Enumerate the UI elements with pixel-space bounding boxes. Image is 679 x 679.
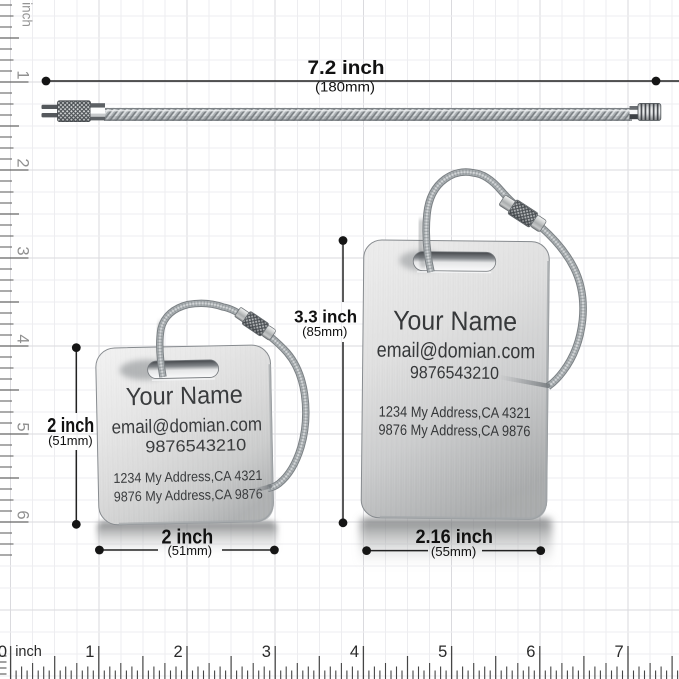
svg-text:4: 4	[350, 643, 359, 661]
svg-text:9876 My Address,CA 9876: 9876 My Address,CA 9876	[378, 422, 530, 441]
svg-text:7: 7	[615, 643, 624, 661]
svg-text:(180mm): (180mm)	[315, 80, 375, 95]
svg-text:Your Name: Your Name	[393, 305, 517, 336]
svg-text:inch: inch	[15, 644, 42, 660]
svg-text:Your Name: Your Name	[126, 381, 244, 411]
svg-text:(55mm): (55mm)	[431, 545, 477, 559]
svg-text:inch: inch	[20, 2, 35, 27]
svg-text:3.3 inch: 3.3 inch	[294, 306, 357, 326]
svg-text:5: 5	[14, 422, 32, 431]
svg-text:4: 4	[14, 334, 32, 343]
svg-text:email@domian.com: email@domian.com	[377, 339, 536, 364]
svg-text:2: 2	[174, 643, 183, 661]
svg-text:3: 3	[14, 246, 32, 255]
svg-text:9876543210: 9876543210	[410, 362, 499, 383]
svg-text:1234 My Address,CA 4321: 1234 My Address,CA 4321	[113, 467, 262, 486]
svg-text:1: 1	[85, 643, 94, 661]
svg-text:6: 6	[14, 510, 32, 519]
svg-text:3: 3	[262, 643, 271, 661]
svg-text:email@domian.com: email@domian.com	[111, 414, 262, 438]
svg-text:(85mm): (85mm)	[302, 325, 347, 339]
svg-text:9876 My Address,CA 9876: 9876 My Address,CA 9876	[114, 485, 263, 504]
svg-text:6: 6	[526, 643, 535, 661]
svg-text:9876543210: 9876543210	[145, 436, 246, 456]
svg-text:5: 5	[438, 643, 447, 661]
svg-text:1234 My Address,CA 4321: 1234 My Address,CA 4321	[379, 404, 531, 423]
svg-text:(51mm): (51mm)	[48, 434, 93, 448]
svg-text:1: 1	[14, 70, 32, 79]
svg-text:(51mm): (51mm)	[168, 544, 213, 558]
svg-text:7.2 inch: 7.2 inch	[308, 57, 385, 79]
svg-text:0: 0	[0, 643, 7, 661]
svg-text:2: 2	[14, 158, 32, 167]
